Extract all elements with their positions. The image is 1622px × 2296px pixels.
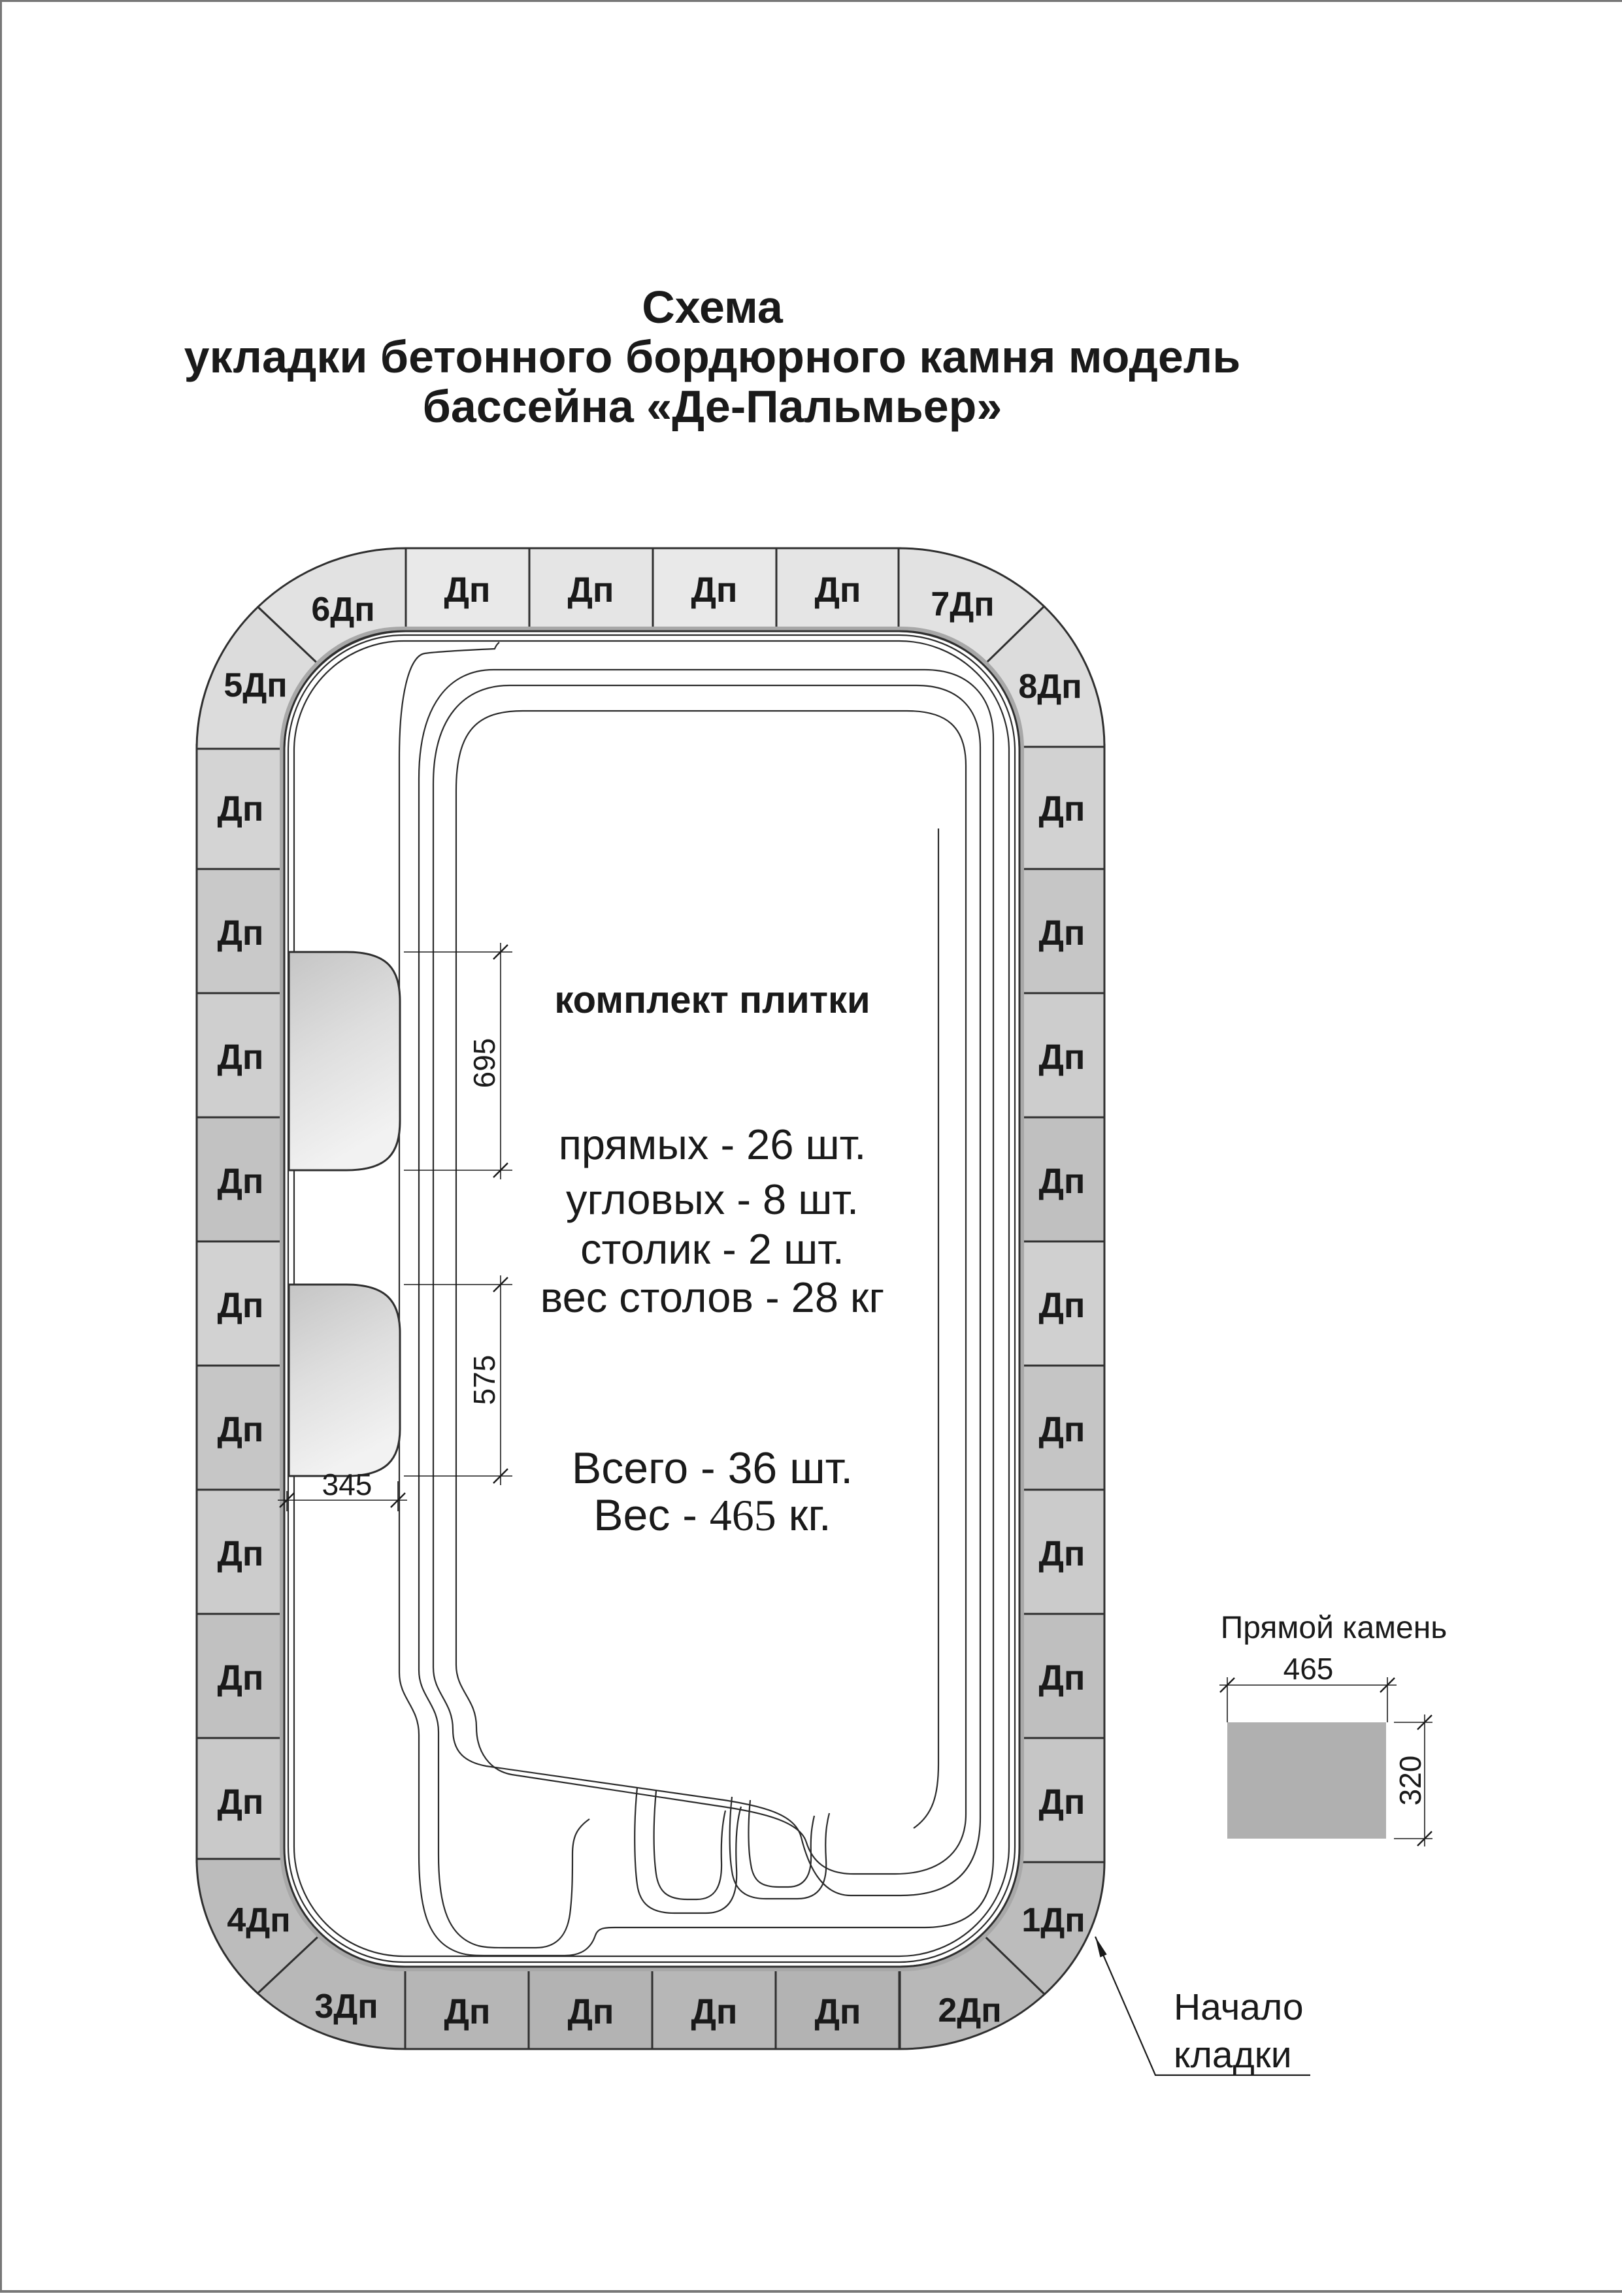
svg-text:Дп: Дп xyxy=(444,570,490,610)
svg-text:Дп: Дп xyxy=(1038,789,1085,828)
svg-text:575: 575 xyxy=(467,1355,501,1405)
svg-text:Дп: Дп xyxy=(217,913,263,953)
svg-text:Дп: Дп xyxy=(1038,1410,1085,1449)
svg-text:465: 465 xyxy=(1283,1652,1334,1686)
svg-text:Дп: Дп xyxy=(1038,1658,1085,1697)
svg-text:Дп: Дп xyxy=(691,570,737,610)
svg-text:Дп: Дп xyxy=(814,570,861,610)
svg-text:6Дп: 6Дп xyxy=(311,591,374,629)
svg-text:бассейна «Де-Пальмьер»: бассейна «Де-Пальмьер» xyxy=(423,381,1002,432)
svg-text:Дп: Дп xyxy=(217,1286,263,1325)
svg-text:Дп: Дп xyxy=(1038,1162,1085,1201)
svg-text:320: 320 xyxy=(1393,1756,1427,1806)
svg-text:Прямой камень: Прямой камень xyxy=(1221,1611,1447,1645)
svg-text:Дп: Дп xyxy=(217,1162,263,1201)
svg-text:4Дп: 4Дп xyxy=(227,1901,290,1939)
svg-text:Всего - 36 шт.: Всего - 36 шт. xyxy=(572,1443,853,1493)
svg-text:Дп: Дп xyxy=(1038,1038,1085,1077)
svg-text:Дп: Дп xyxy=(1038,1782,1085,1822)
svg-text:укладки бетонного бордюрного к: укладки бетонного бордюрного камня модел… xyxy=(184,331,1241,382)
svg-text:Дп: Дп xyxy=(217,1534,263,1573)
svg-text:Дп: Дп xyxy=(1038,913,1085,953)
svg-text:8Дп: 8Дп xyxy=(1018,668,1082,706)
svg-text:Дп: Дп xyxy=(217,1038,263,1077)
svg-text:Дп: Дп xyxy=(1038,1286,1085,1325)
svg-text:Дп: Дп xyxy=(691,1992,737,2031)
svg-text:прямых - 26 шт.: прямых - 26 шт. xyxy=(559,1121,867,1168)
svg-text:Дп: Дп xyxy=(567,570,614,610)
svg-text:Дп: Дп xyxy=(444,1992,490,2031)
svg-text:кладки: кладки xyxy=(1174,2034,1292,2076)
svg-text:Дп: Дп xyxy=(814,1992,861,2031)
svg-text:Дп: Дп xyxy=(217,1658,263,1697)
svg-text:1Дп: 1Дп xyxy=(1021,1901,1085,1939)
svg-text:5Дп: 5Дп xyxy=(223,666,287,704)
svg-text:Начало: Начало xyxy=(1174,1986,1304,2028)
svg-text:Дп: Дп xyxy=(217,1782,263,1822)
svg-text:345: 345 xyxy=(322,1468,372,1501)
svg-text:столик - 2 шт.: столик - 2 шт. xyxy=(580,1225,844,1273)
svg-text:вес столов - 28 кг: вес столов - 28 кг xyxy=(540,1273,884,1321)
svg-text:695: 695 xyxy=(467,1038,501,1089)
svg-text:Дп: Дп xyxy=(217,1410,263,1449)
svg-text:комплект плитки: комплект плитки xyxy=(554,979,870,1021)
svg-text:Дп: Дп xyxy=(1038,1534,1085,1573)
svg-text:Вес - 465 кг.: Вес - 465 кг. xyxy=(593,1490,831,1540)
svg-text:3Дп: 3Дп xyxy=(314,1988,378,2025)
svg-text:Схема: Схема xyxy=(642,282,784,333)
svg-text:7Дп: 7Дп xyxy=(931,585,994,623)
svg-text:2Дп: 2Дп xyxy=(938,1992,1001,2029)
svg-text:Дп: Дп xyxy=(567,1992,614,2031)
svg-text:угловых - 8 шт.: угловых - 8 шт. xyxy=(566,1175,859,1223)
svg-text:Дп: Дп xyxy=(217,789,263,828)
